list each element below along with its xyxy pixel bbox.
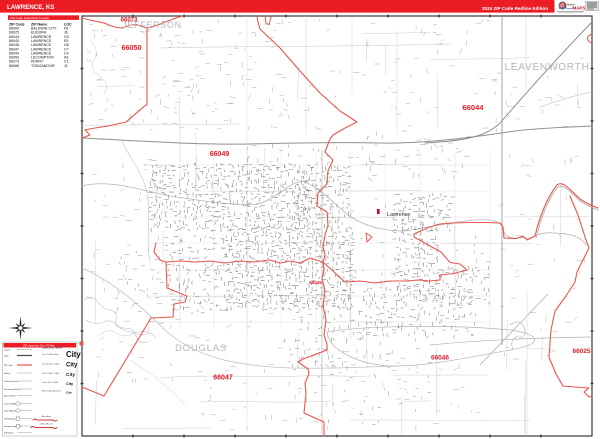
- svg-text:City: City: [66, 372, 75, 378]
- svg-text:Secondary Streets: Secondary Streets: [4, 388, 20, 391]
- svg-text:Over 75,000 or More: Over 75,000 or More: [42, 354, 59, 356]
- svg-text:Over 5,000 - 10,000: Over 5,000 - 10,000: [42, 382, 58, 384]
- svg-text:66086: 66086: [9, 64, 19, 68]
- svg-text:66044: 66044: [463, 103, 485, 112]
- svg-text:Cities and Towns: Cities and Towns: [42, 346, 63, 350]
- svg-text:Urban Area: Urban Area: [41, 415, 52, 418]
- svg-text:LEAVENWORTH: LEAVENWORTH: [504, 62, 589, 73]
- svg-text:Lawrence: Lawrence: [387, 212, 410, 218]
- svg-text:ZIP Code: ZIP Code: [4, 365, 13, 367]
- svg-text:66045: 66045: [309, 280, 322, 285]
- svg-text:LAWRENCE, KS: LAWRENCE, KS: [7, 4, 54, 11]
- svg-text:Minor Streets: Minor Streets: [4, 395, 16, 398]
- svg-text:Toll Roads: Toll Roads: [4, 433, 13, 435]
- svg-text:MAPS: MAPS: [573, 6, 586, 11]
- svg-text:Primary Streets: Primary Streets: [4, 380, 18, 383]
- svg-text:66050: 66050: [122, 43, 142, 52]
- svg-text:City: City: [66, 382, 74, 386]
- svg-text:Place 5,000 and Fewer: Place 5,000 and Fewer: [42, 391, 61, 393]
- svg-text:County: County: [4, 349, 10, 352]
- svg-text:Streets: Streets: [4, 372, 10, 375]
- svg-text:Over 10,000 - 25,000: Over 10,000 - 25,000: [42, 373, 59, 375]
- svg-text:JEFFERSON: JEFFERSON: [122, 20, 182, 30]
- svg-text:City: City: [66, 391, 72, 395]
- svg-text:DOUGLAS: DOUGLAS: [175, 343, 227, 354]
- svg-text:2024 ZIP Code Redline Edition: 2024 ZIP Code Redline Edition: [482, 6, 548, 11]
- svg-text:66025: 66025: [572, 348, 590, 355]
- svg-text:66049: 66049: [210, 151, 230, 158]
- svg-text:66046: 66046: [431, 355, 449, 362]
- svg-text:Limited Access: Limited Access: [40, 423, 53, 426]
- svg-text:ZIP Code Index/Grid Locator: ZIP Code Index/Grid Locator: [9, 16, 50, 20]
- svg-text:City: City: [66, 350, 81, 359]
- svg-text:66047: 66047: [213, 375, 233, 382]
- svg-text:US Highways: US Highways: [4, 419, 16, 421]
- svg-text:TONGANOXIE: TONGANOXIE: [31, 64, 55, 68]
- svg-text:Over 25,000 - 50,000: Over 25,000 - 50,000: [42, 364, 59, 366]
- svg-text:J1: J1: [64, 64, 68, 68]
- svg-text:City: City: [66, 363, 78, 369]
